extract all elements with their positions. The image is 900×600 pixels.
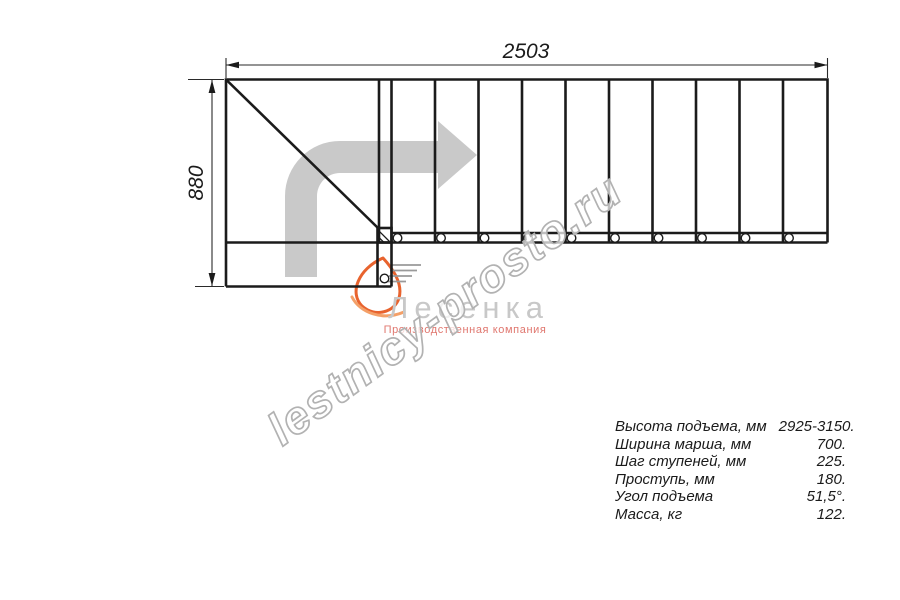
- spec-value: 180.: [805, 471, 846, 489]
- spec-value: 700.: [805, 436, 846, 454]
- spec-row: Ширина марша, мм 700.: [615, 436, 846, 454]
- bolt-holes: [380, 234, 793, 283]
- spec-row: Высота подъема, мм 2925-3150.: [615, 418, 846, 436]
- spec-table: Высота подъема, мм 2925-3150. Ширина мар…: [615, 418, 846, 524]
- spec-row: Масса, кг 122.: [615, 506, 846, 524]
- height-dimension-label: 880: [185, 165, 208, 200]
- stair-plan-page: Лесенка Производственная компания: [0, 0, 900, 600]
- spec-label: Проступь, мм: [615, 471, 715, 489]
- spec-label: Высота подъема, мм: [615, 418, 767, 436]
- spec-value: 225.: [805, 453, 846, 471]
- spec-row: Проступь, мм 180.: [615, 471, 846, 489]
- spec-row: Шаг ступеней, мм 225.: [615, 453, 846, 471]
- direction-arrow-icon: [285, 121, 477, 277]
- width-dimension-label: 2503: [502, 40, 550, 63]
- spec-label: Угол подъема: [615, 488, 713, 506]
- spec-label: Ширина марша, мм: [615, 436, 751, 454]
- spec-value: 51,5°.: [795, 488, 846, 506]
- spec-label: Масса, кг: [615, 506, 682, 524]
- spec-row: Угол подъема 51,5°.: [615, 488, 846, 506]
- spec-value: 2925-3150.: [767, 418, 855, 436]
- spec-label: Шаг ступеней, мм: [615, 453, 746, 471]
- spec-value: 122.: [805, 506, 846, 524]
